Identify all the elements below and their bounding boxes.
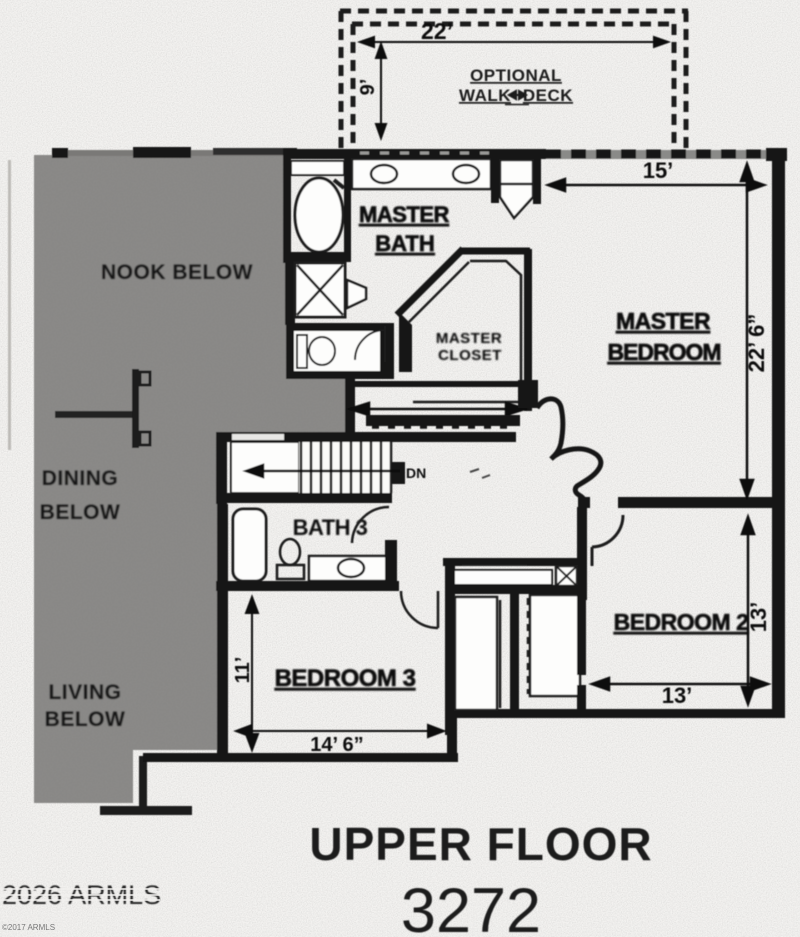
svg-text:22’ 6”: 22’ 6” [744, 314, 769, 373]
svg-text:MASTER: MASTER [616, 308, 711, 334]
svg-text:BATH: BATH [375, 231, 434, 256]
svg-text:15’: 15’ [643, 158, 674, 183]
svg-text:NOOK BELOW: NOOK BELOW [101, 261, 253, 284]
svg-text:BEDROOM 2: BEDROOM 2 [614, 609, 749, 635]
svg-text:DECK: DECK [523, 86, 573, 105]
svg-text:9’: 9’ [357, 79, 379, 96]
svg-text:UPPER FLOOR: UPPER FLOOR [309, 818, 652, 870]
svg-text:OPTIONAL: OPTIONAL [470, 66, 562, 85]
svg-text:BELOW: BELOW [45, 708, 126, 731]
svg-text:LIVING: LIVING [48, 681, 121, 704]
svg-text:22’: 22’ [421, 18, 453, 44]
svg-text:11’: 11’ [232, 657, 254, 684]
svg-text:13’: 13’ [662, 683, 693, 708]
svg-text:BEDROOM: BEDROOM [607, 339, 720, 365]
svg-text:DINING: DINING [42, 467, 119, 490]
svg-text:WALK: WALK [459, 86, 511, 105]
svg-text:14’ 6”: 14’ 6” [310, 734, 363, 756]
svg-text:13’: 13’ [746, 602, 771, 633]
svg-text:MASTER: MASTER [359, 202, 450, 227]
svg-text:MASTER: MASTER [436, 330, 502, 347]
svg-text:DN: DN [406, 465, 426, 481]
svg-text:3272: 3272 [401, 876, 541, 937]
svg-text:CLOSET: CLOSET [438, 347, 502, 364]
svg-text:BEDROOM 3: BEDROOM 3 [275, 665, 416, 692]
svg-text:©2017 ARMLS: ©2017 ARMLS [2, 923, 55, 932]
svg-text:BELOW: BELOW [40, 501, 121, 524]
